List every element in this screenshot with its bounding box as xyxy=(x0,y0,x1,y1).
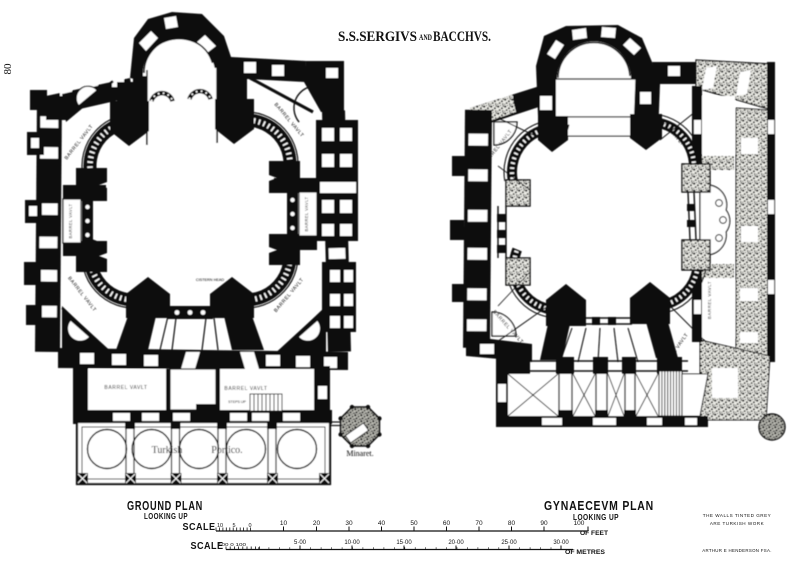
svg-text:BARREL VAVLT: BARREL VAVLT xyxy=(68,204,73,239)
svg-text:70: 70 xyxy=(475,520,483,527)
svg-text:5·00: 5·00 xyxy=(294,540,307,546)
svg-text:90: 90 xyxy=(540,520,548,527)
svg-text:BARREL VAVLT: BARREL VAVLT xyxy=(707,281,712,319)
svg-text:SCALE: SCALE xyxy=(183,522,216,533)
svg-text:10: 10 xyxy=(280,520,288,527)
svg-text:Portico.: Portico. xyxy=(211,445,242,456)
svg-text:THE WALLS TINTED GREY: THE WALLS TINTED GREY xyxy=(703,513,771,518)
svg-text:80: 80 xyxy=(2,63,14,75)
svg-text:GROUND PLAN: GROUND PLAN xyxy=(127,498,203,513)
svg-text:100 0 100: 100 0 100 xyxy=(218,542,247,547)
svg-text:10: 10 xyxy=(217,523,223,529)
svg-text:GYNAECEVM PLAN: GYNAECEVM PLAN xyxy=(544,498,654,513)
svg-text:S.S.SERGIVS: S.S.SERGIVS xyxy=(338,29,417,45)
svg-text:80: 80 xyxy=(508,520,516,527)
svg-text:10·00: 10·00 xyxy=(344,540,360,546)
svg-text:20·00: 20·00 xyxy=(448,540,464,546)
svg-text:5: 5 xyxy=(232,523,235,529)
svg-text:BARREL VAVLT: BARREL VAVLT xyxy=(224,386,267,392)
svg-text:30: 30 xyxy=(345,520,353,527)
svg-text:OF METRES: OF METRES xyxy=(565,549,606,556)
svg-text:25·00: 25·00 xyxy=(501,540,517,546)
svg-text:ARTHUR E HENDERSON FSA.: ARTHUR E HENDERSON FSA. xyxy=(702,548,772,553)
svg-text:CISTERN HEAD: CISTERN HEAD xyxy=(196,278,225,282)
svg-text:ARE TURKISH WORK: ARE TURKISH WORK xyxy=(710,521,765,526)
svg-text:Turkish: Turkish xyxy=(152,445,183,456)
svg-text:20: 20 xyxy=(313,520,321,527)
svg-text:STEPS UP: STEPS UP xyxy=(228,400,246,404)
svg-text:AND: AND xyxy=(419,33,432,42)
svg-text:50: 50 xyxy=(410,520,418,527)
svg-text:60: 60 xyxy=(443,520,451,527)
svg-text:0: 0 xyxy=(248,523,251,529)
svg-text:100: 100 xyxy=(574,520,585,527)
svg-text:Minaret.: Minaret. xyxy=(346,449,373,458)
svg-text:30·00: 30·00 xyxy=(553,540,569,546)
svg-text:BACCHVS.: BACCHVS. xyxy=(433,29,491,45)
svg-text:40: 40 xyxy=(378,520,386,527)
svg-text:15·00: 15·00 xyxy=(396,540,412,546)
svg-text:OF FEET: OF FEET xyxy=(580,530,608,537)
svg-text:BARREL VAVLT: BARREL VAVLT xyxy=(304,197,309,232)
svg-text:BARREL VAVLT: BARREL VAVLT xyxy=(104,385,147,391)
svg-text:LOOKING UP: LOOKING UP xyxy=(144,512,188,521)
